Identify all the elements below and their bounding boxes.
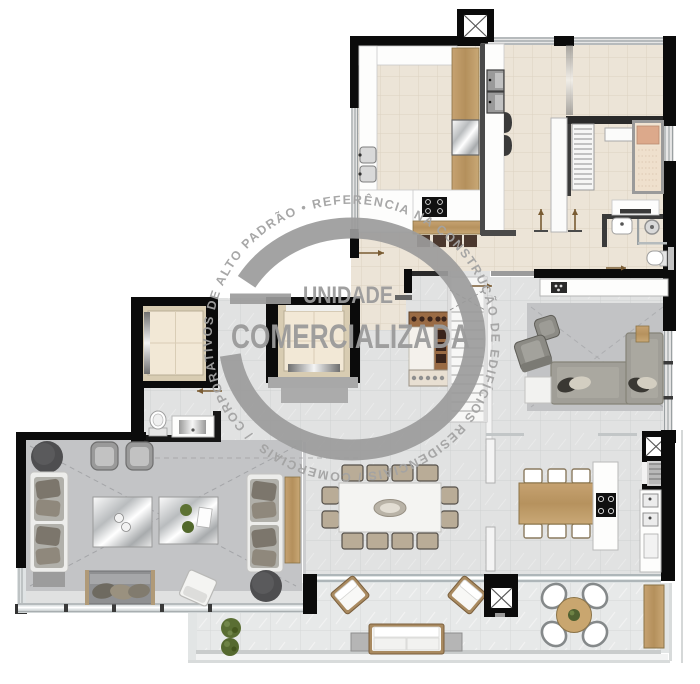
svg-text:UNIDADE: UNIDADE bbox=[303, 282, 393, 309]
svg-text:COMERCIALIZADA: COMERCIALIZADA bbox=[231, 318, 470, 356]
